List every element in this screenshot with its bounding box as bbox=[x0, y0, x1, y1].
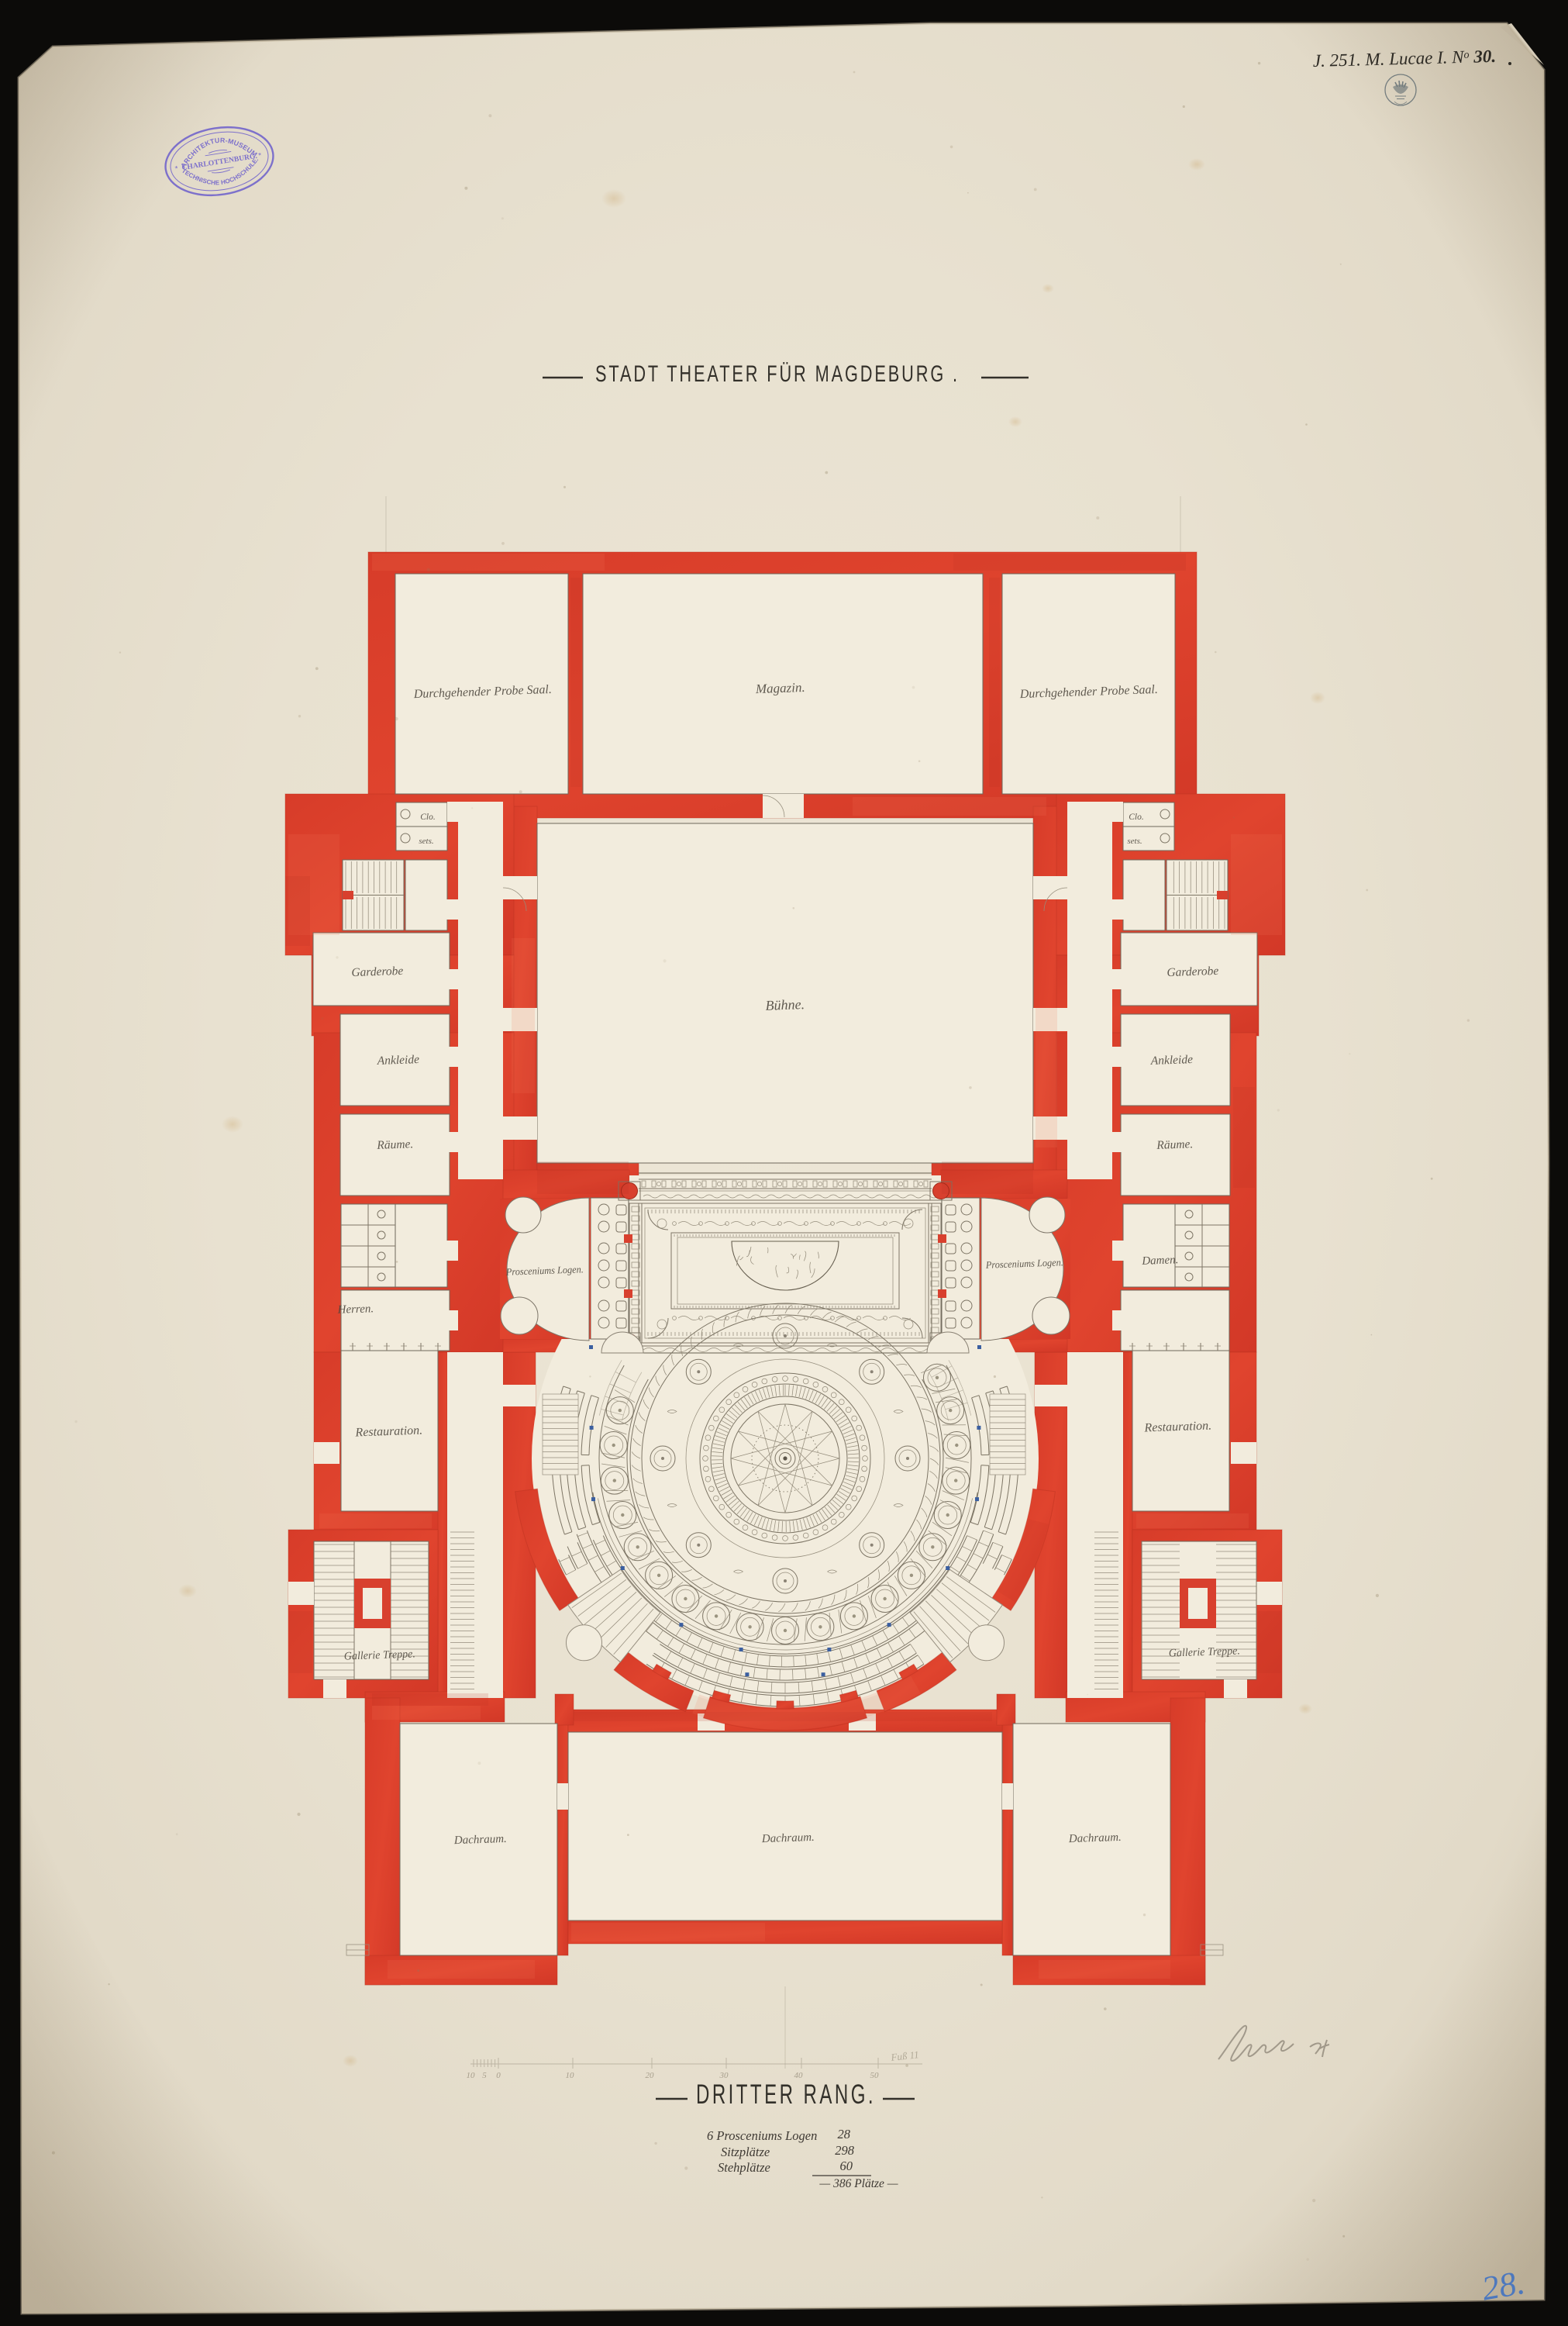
svg-text:STADT THEATER FÜR MAGDEBURG .: STADT THEATER FÜR MAGDEBURG . bbox=[595, 361, 960, 387]
svg-text:Bühne.: Bühne. bbox=[765, 996, 805, 1013]
svg-text:Räume.: Räume. bbox=[376, 1137, 413, 1152]
svg-text:20: 20 bbox=[646, 2071, 655, 2080]
svg-text:sets.: sets. bbox=[1127, 837, 1142, 846]
svg-text:Ankleide: Ankleide bbox=[1149, 1053, 1193, 1068]
svg-text:28: 28 bbox=[838, 2127, 851, 2141]
svg-text:Herren.: Herren. bbox=[336, 1303, 374, 1317]
svg-text:10: 10 bbox=[566, 2071, 575, 2080]
svg-text:298: 298 bbox=[835, 2143, 855, 2158]
svg-text:Gallerie Treppe.: Gallerie Treppe. bbox=[344, 1648, 416, 1662]
svg-text:Sitzplätze: Sitzplätze bbox=[721, 2145, 770, 2159]
svg-text:28.: 28. bbox=[1479, 2263, 1528, 2308]
svg-text:10: 10 bbox=[467, 2071, 476, 2080]
svg-text:Dachraum.: Dachraum. bbox=[761, 1831, 815, 1845]
svg-text:5: 5 bbox=[482, 2071, 487, 2080]
svg-text:Garderobe: Garderobe bbox=[1167, 965, 1219, 979]
svg-text:Restauration.: Restauration. bbox=[354, 1424, 422, 1439]
svg-text:DRITTER RANG.: DRITTER RANG. bbox=[696, 2079, 876, 2110]
svg-text:Ankleide: Ankleide bbox=[376, 1053, 419, 1068]
svg-text:Clo.: Clo. bbox=[1129, 813, 1144, 822]
svg-text:— 386 Plätze —: — 386 Plätze — bbox=[818, 2177, 898, 2190]
svg-text:6 Prosceniums Logen: 6 Prosceniums Logen bbox=[707, 2128, 817, 2143]
svg-text:Dachraum.: Dachraum. bbox=[453, 1833, 507, 1847]
svg-text:Garderobe: Garderobe bbox=[351, 965, 404, 979]
svg-text:60: 60 bbox=[840, 2159, 853, 2173]
svg-text:Gallerie Treppe.: Gallerie Treppe. bbox=[1169, 1644, 1241, 1659]
svg-text:Räume.: Räume. bbox=[1156, 1137, 1193, 1152]
svg-text:Stehplätze: Stehplätze bbox=[718, 2160, 770, 2175]
svg-text:Magazin.: Magazin. bbox=[755, 680, 805, 696]
svg-text:Damen.: Damen. bbox=[1141, 1254, 1179, 1268]
svg-text:0: 0 bbox=[496, 2071, 501, 2080]
svg-text:Restauration.: Restauration. bbox=[1143, 1419, 1211, 1434]
svg-text:Dachraum.: Dachraum. bbox=[1068, 1831, 1122, 1845]
svg-text:Clo.: Clo. bbox=[420, 813, 436, 822]
svg-text:sets.: sets. bbox=[419, 837, 433, 846]
